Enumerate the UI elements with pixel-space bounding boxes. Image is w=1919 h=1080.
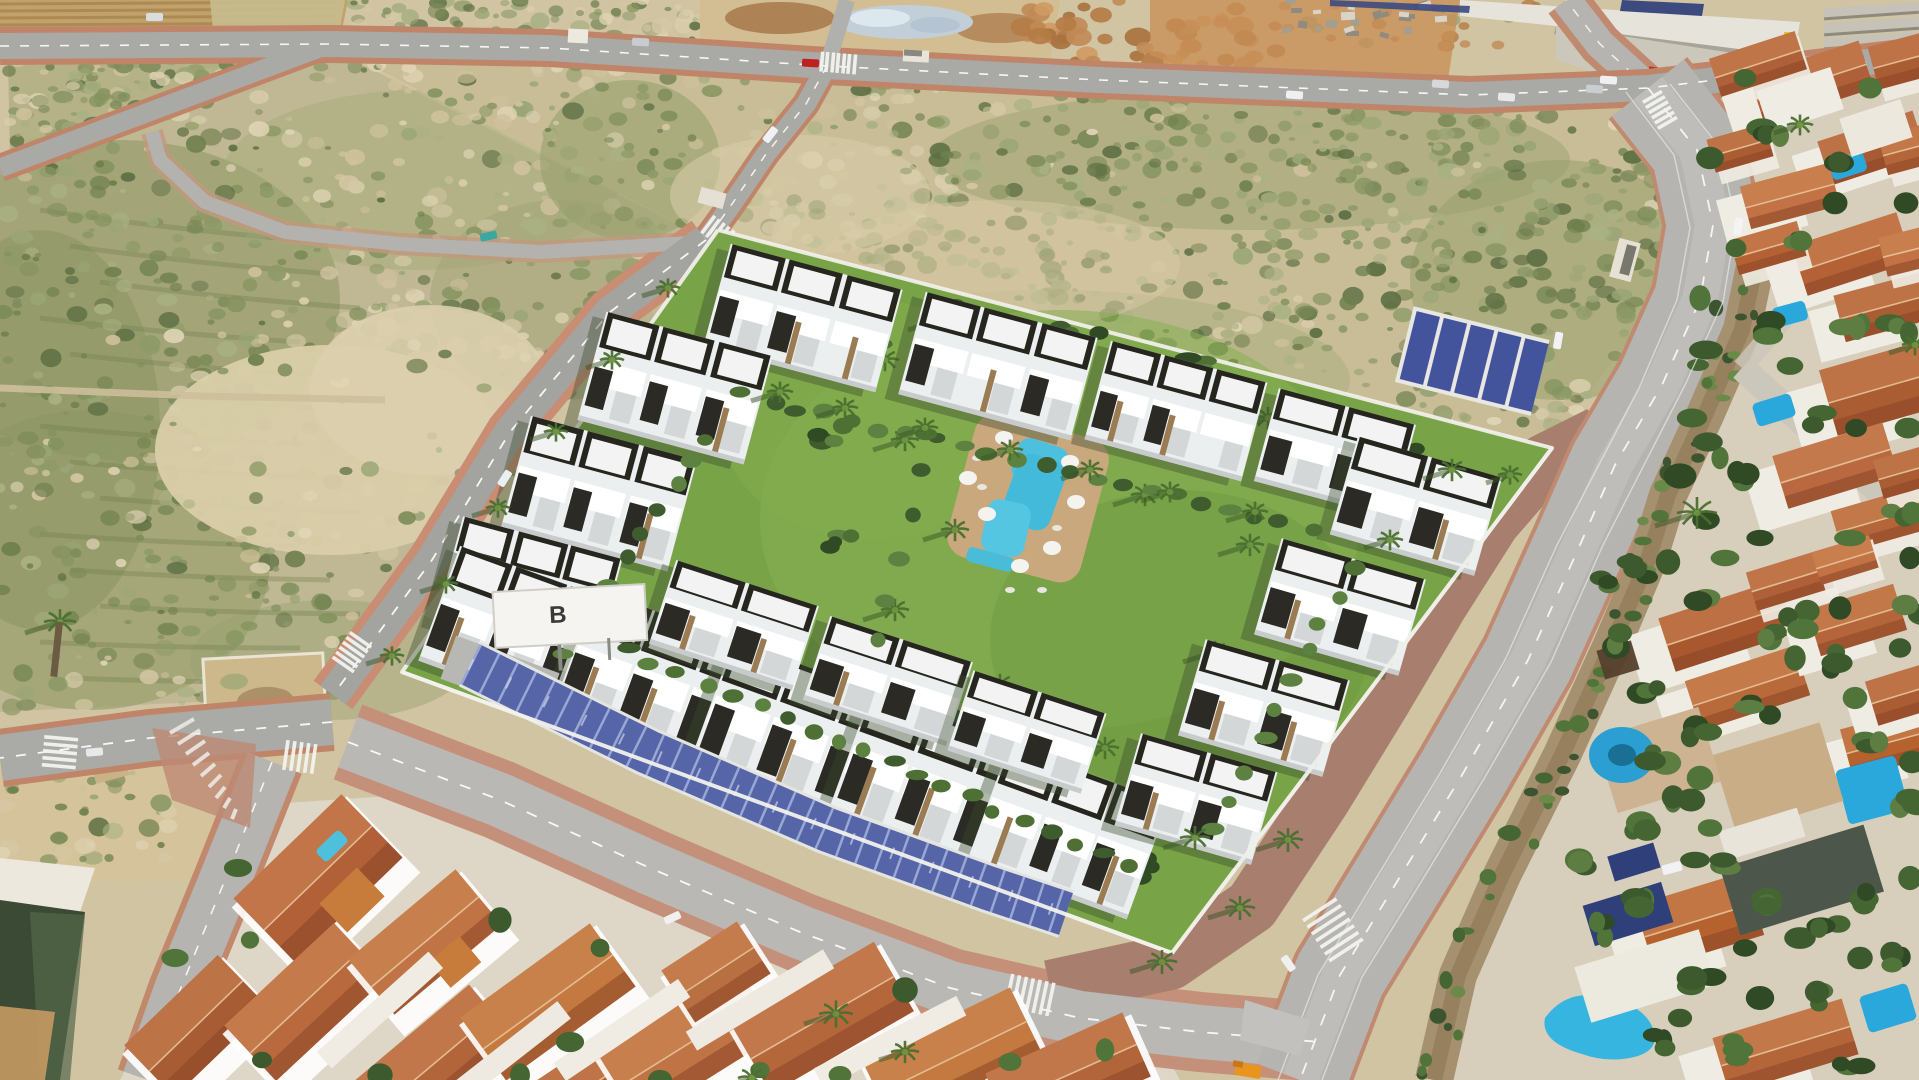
svg-text:B: B: [548, 601, 567, 629]
